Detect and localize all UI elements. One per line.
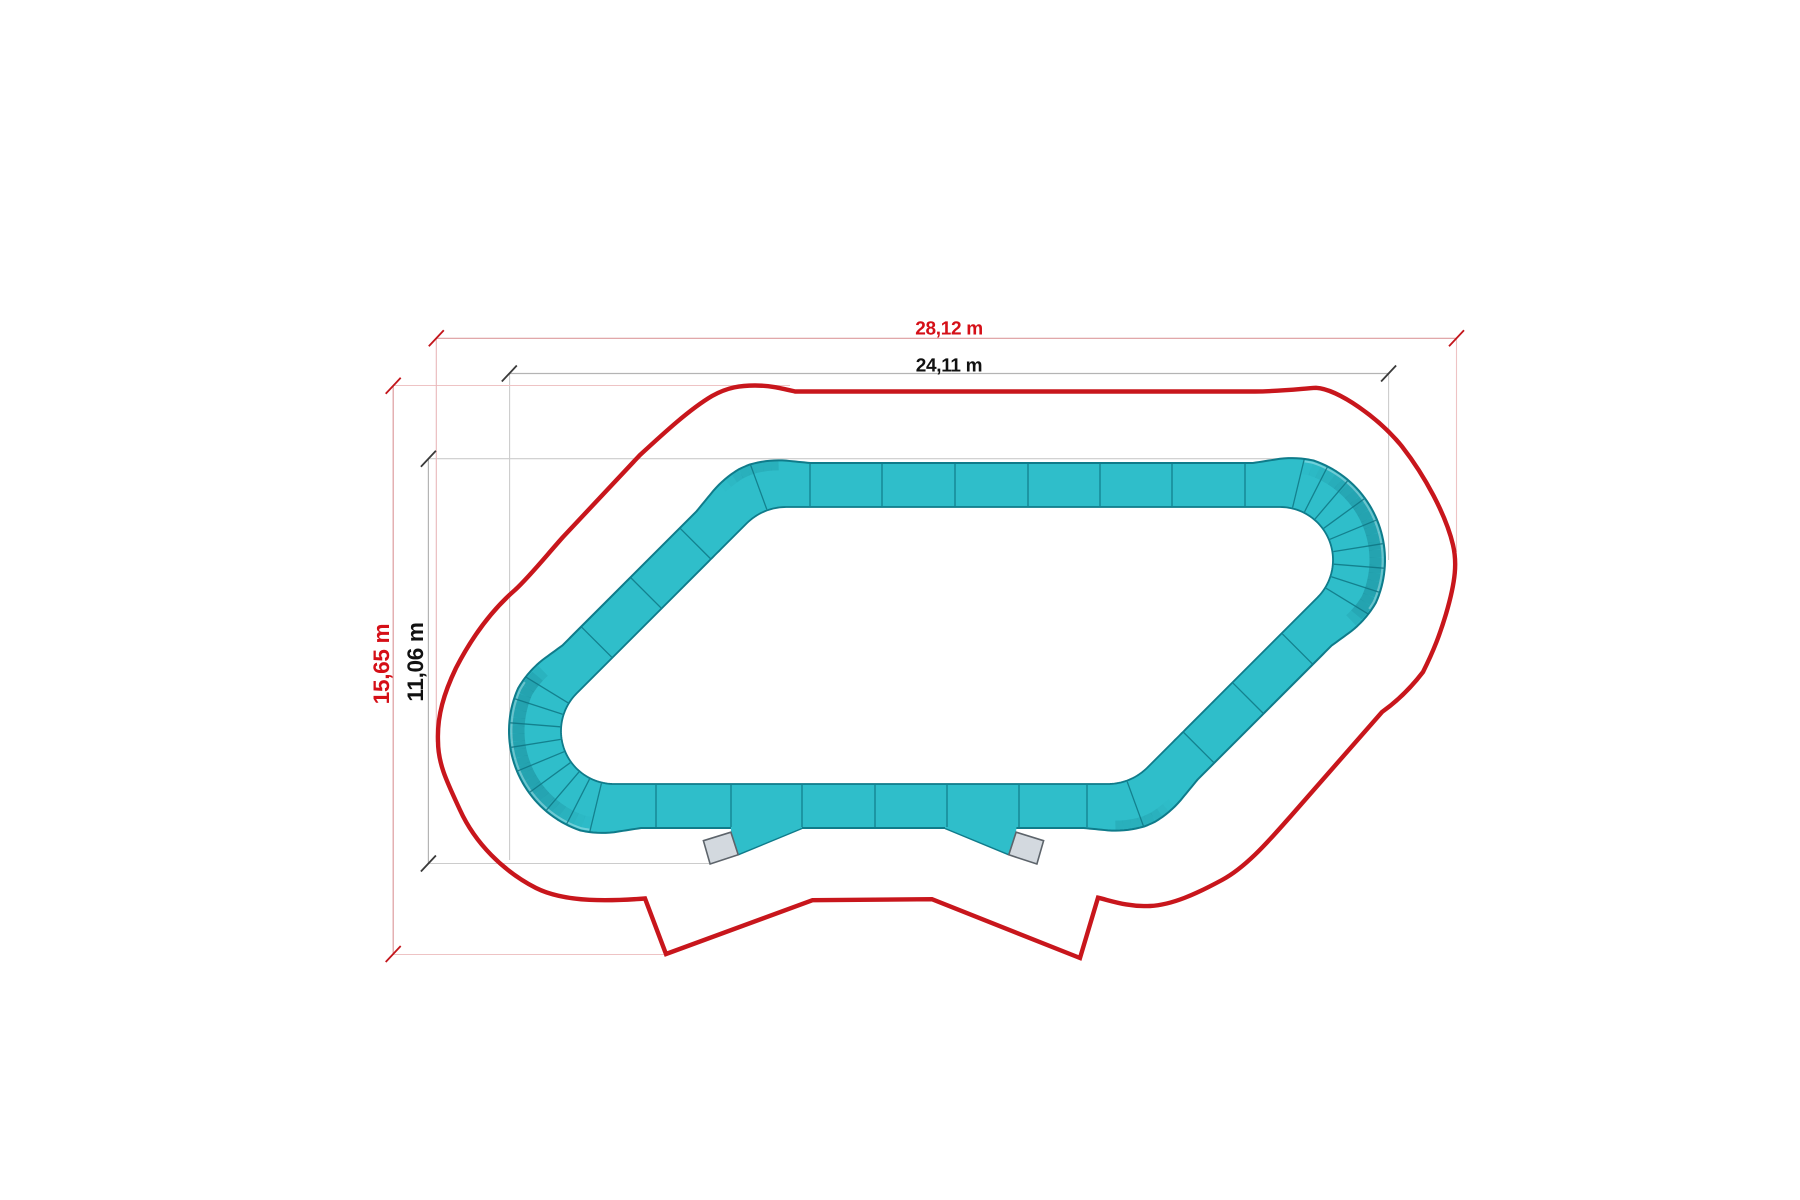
svg-text:28,12 m: 28,12 m: [915, 319, 983, 340]
svg-text:11,06 m: 11,06 m: [403, 622, 428, 701]
svg-text:15,65 m: 15,65 m: [369, 624, 394, 704]
svg-text:24,11 m: 24,11 m: [916, 355, 983, 376]
